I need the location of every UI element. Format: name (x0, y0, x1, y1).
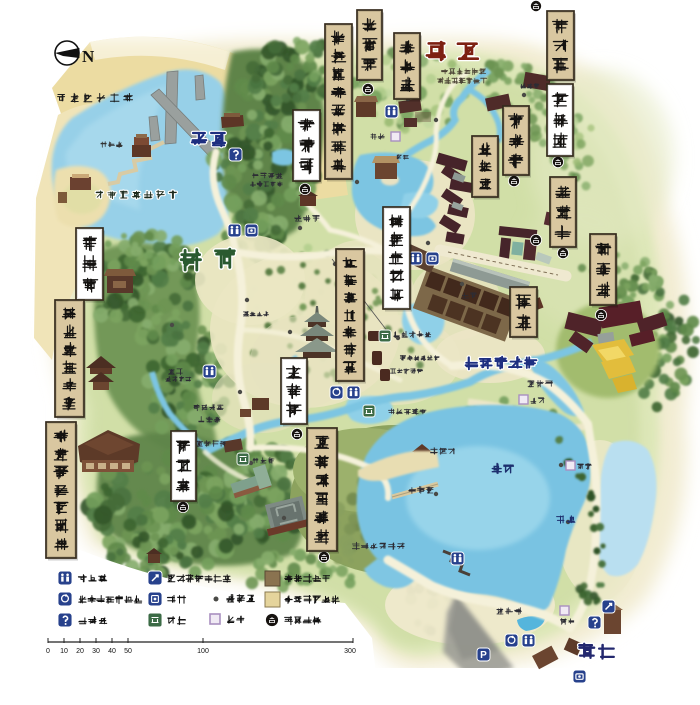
svg-text:N: N (82, 47, 95, 66)
svg-text:50: 50 (124, 648, 132, 655)
svg-text:P: P (480, 650, 487, 661)
svg-text:0: 0 (46, 648, 50, 655)
svg-text:300: 300 (344, 648, 356, 655)
svg-text:30: 30 (92, 648, 100, 655)
svg-text:100: 100 (197, 648, 209, 655)
svg-text:10: 10 (60, 648, 68, 655)
svg-text:20: 20 (76, 648, 84, 655)
svg-text:40: 40 (108, 648, 116, 655)
